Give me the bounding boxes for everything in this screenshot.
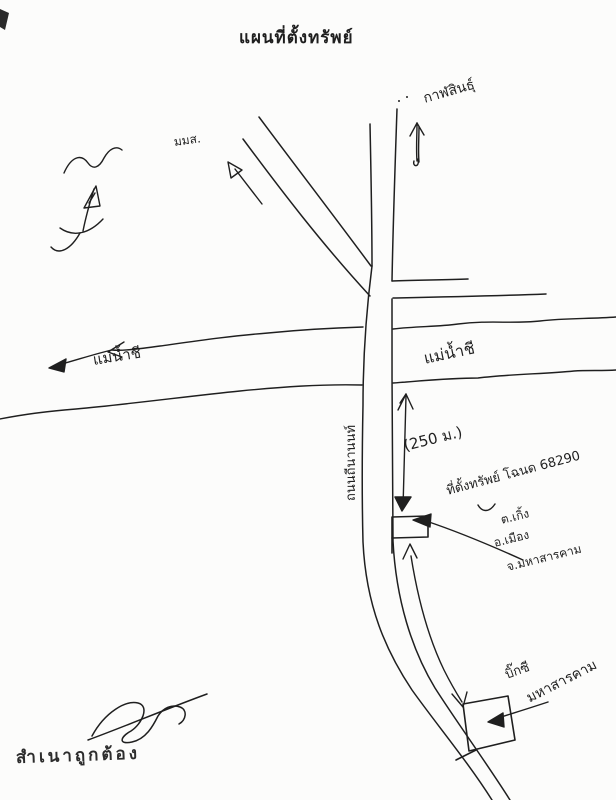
scanned-property-map: แผนที่ตั้งทรัพย์ กาฬสินธุ์ มมส. แม่น้ำชี…	[0, 0, 616, 800]
landmark-label-arrow	[488, 702, 548, 727]
side-road	[392, 279, 546, 298]
route-arrow	[403, 544, 467, 707]
road-name-label: ถนนถีนานนท์	[345, 425, 359, 501]
certified-copy-stamp: สำเนาถูกต้อง	[16, 745, 141, 768]
chi-river-west	[0, 327, 363, 419]
north-arrow-icon	[51, 148, 122, 251]
map-sketch	[0, 0, 616, 800]
scan-artifact	[0, 9, 9, 30]
university-direction-arrow	[228, 162, 262, 204]
main-road	[362, 109, 510, 800]
landmark-marker	[456, 696, 515, 760]
kalasin-direction-arrow	[398, 96, 424, 166]
page-title: แผนที่ตั้งทรัพย์	[239, 29, 354, 48]
branch-road	[243, 117, 371, 296]
signature	[88, 694, 207, 743]
